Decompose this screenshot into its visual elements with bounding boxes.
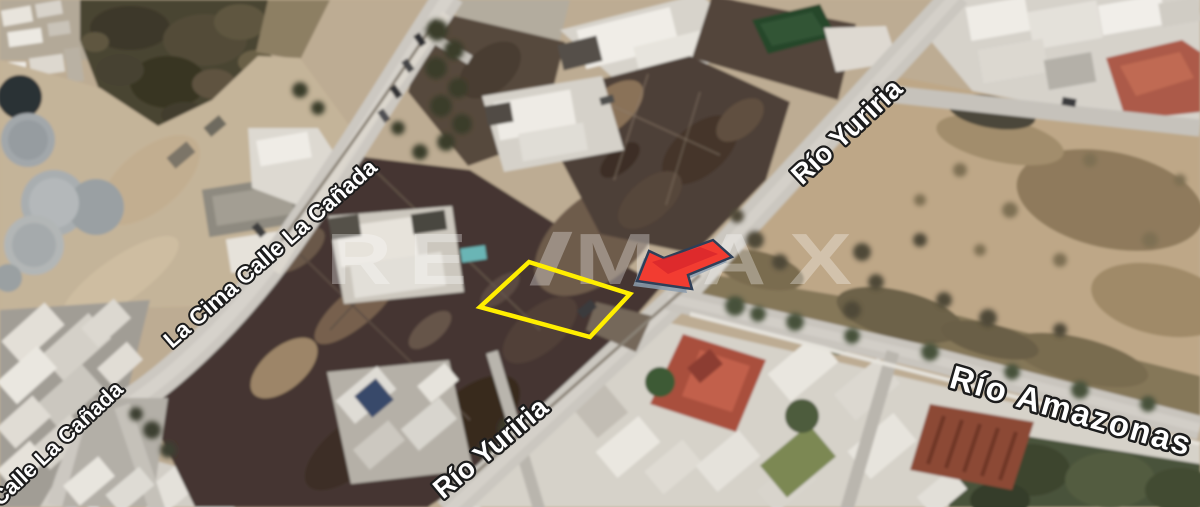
- svg-text:/: /: [528, 220, 574, 300]
- svg-text:E: E: [409, 220, 467, 300]
- svg-text:R: R: [326, 220, 392, 300]
- svg-text:X: X: [789, 220, 852, 300]
